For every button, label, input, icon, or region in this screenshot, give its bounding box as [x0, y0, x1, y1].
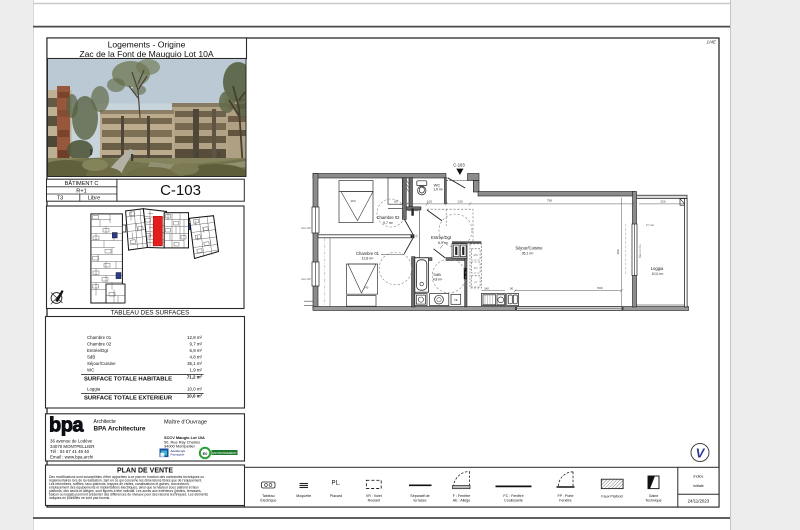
- svg-text:4,8 m²: 4,8 m²: [190, 355, 203, 360]
- svg-text:12,8 m²: 12,8 m²: [187, 335, 202, 340]
- svg-text:Gaine: Gaine: [649, 494, 659, 498]
- svg-text:Électrique: Électrique: [260, 497, 276, 502]
- svg-text:Faux Plafond: Faux Plafond: [601, 495, 622, 499]
- svg-text:TABLEAU DES SURFACES: TABLEAU DES SURFACES: [111, 309, 190, 316]
- svg-text:bpa: bpa: [49, 415, 84, 437]
- svg-text:Libre: Libre: [88, 196, 100, 202]
- svg-text:SURFACE TOTALE EXTERIEUR: SURFACE TOTALE EXTERIEUR: [84, 396, 173, 402]
- svg-text:V: V: [696, 446, 706, 461]
- svg-text:Moquette: Moquette: [296, 494, 311, 498]
- svg-text:Maître d'Ouvrage: Maître d'Ouvrage: [164, 419, 207, 425]
- svg-text:SdB: SdB: [433, 272, 441, 277]
- svg-text:AE : Allège: AE : Allège: [453, 498, 471, 502]
- svg-text:SdB: SdB: [87, 355, 95, 360]
- svg-text:790: 790: [547, 198, 552, 202]
- svg-text:Séjour/Cuisine: Séjour/Cuisine: [87, 361, 116, 366]
- svg-text:F : Fenêtre: F : Fenêtre: [453, 494, 471, 498]
- svg-text:9,7 m²: 9,7 m²: [383, 221, 394, 225]
- svg-text:130: 130: [457, 200, 462, 204]
- svg-text:Technique: Technique: [645, 498, 661, 502]
- svg-text:FO: FO: [474, 266, 478, 270]
- svg-text:Indice: Indice: [693, 475, 703, 479]
- svg-text:VR : Volet: VR : Volet: [366, 494, 382, 498]
- svg-text:BÂTIMENT C: BÂTIMENT C: [65, 180, 99, 187]
- svg-text:initiale: initiale: [693, 484, 704, 488]
- svg-text:Email : www.bpa.archi: Email : www.bpa.archi: [50, 454, 93, 459]
- svg-text:140: 140: [484, 287, 489, 291]
- svg-text:220: 220: [660, 199, 665, 203]
- svg-text:Tableau: Tableau: [262, 494, 275, 498]
- svg-text:SURFACE TOTALE HABITABLE: SURFACE TOTALE HABITABLE: [84, 377, 172, 383]
- svg-text:35,1 m²: 35,1 m²: [522, 252, 535, 256]
- svg-text:terrasse: terrasse: [414, 498, 427, 502]
- svg-text:140: 140: [364, 286, 369, 290]
- svg-text:Loggia: Loggia: [87, 387, 101, 392]
- svg-text:Chambre 01: Chambre 01: [356, 251, 380, 256]
- svg-text:500: 500: [597, 286, 602, 290]
- svg-text:1/4E: 1/4E: [707, 40, 717, 45]
- svg-text:Fenêtre: Fenêtre: [559, 498, 571, 502]
- svg-text:FC : Fenêtre: FC : Fenêtre: [503, 494, 523, 498]
- svg-text:WC: WC: [87, 368, 94, 373]
- svg-text:VE: VE: [454, 298, 458, 302]
- svg-text:Paysagiste: Paysagiste: [171, 453, 185, 457]
- svg-text:90: 90: [510, 287, 514, 291]
- svg-text:Chambre 01: Chambre 01: [87, 335, 112, 340]
- svg-text:Chambre 02: Chambre 02: [87, 342, 112, 347]
- svg-text:102: 102: [427, 200, 432, 204]
- svg-text:Baie vit 4 m: Baie vit 4 m: [638, 244, 642, 258]
- svg-text:Tél : 04 67 41 49 40: Tél : 04 67 41 49 40: [50, 449, 90, 454]
- svg-text:ENVIRONNEMENT: ENVIRONNEMENT: [212, 451, 237, 455]
- svg-text:1,9 m²: 1,9 m²: [433, 188, 443, 192]
- svg-text:1,9 m²: 1,9 m²: [190, 368, 203, 373]
- svg-text:C-103: C-103: [453, 163, 465, 168]
- svg-text:12,8 m²: 12,8 m²: [362, 257, 375, 261]
- svg-text:R+1: R+1: [76, 188, 86, 194]
- svg-text:Séparatif de: Séparatif de: [410, 494, 429, 498]
- svg-text:LV: LV: [474, 280, 477, 284]
- svg-text:490: 490: [616, 249, 620, 254]
- svg-text:9,7 m²: 9,7 m²: [190, 342, 203, 347]
- svg-text:Entrée/Dgt: Entrée/Dgt: [431, 235, 452, 240]
- svg-text:6,9 m²: 6,9 m²: [438, 241, 449, 245]
- svg-text:35,1 m²: 35,1 m²: [187, 361, 202, 366]
- svg-text:10,0 m²: 10,0 m²: [652, 272, 665, 276]
- svg-text:BPA Architecture: BPA Architecture: [94, 426, 146, 433]
- svg-text:E0: E0: [203, 452, 208, 456]
- svg-text:Entrée/Dgt: Entrée/Dgt: [87, 348, 109, 353]
- svg-text:34000 Montpellier: 34000 Montpellier: [164, 444, 196, 449]
- svg-text:indiqués en pointillés ne sont: indiqués en pointillés ne sont pas fourn…: [49, 496, 110, 500]
- svg-text:T3: T3: [57, 196, 64, 202]
- svg-text:34070 MONTPELLIER: 34070 MONTPELLIER: [50, 444, 94, 449]
- svg-text:Chambre 02: Chambre 02: [376, 215, 400, 220]
- svg-text:4,8 m²: 4,8 m²: [433, 278, 443, 282]
- svg-text:71,2 m²: 71,2 m²: [187, 375, 203, 380]
- svg-text:Fen-VR: Fen-VR: [301, 226, 310, 230]
- svg-text:FC ratt: FC ratt: [646, 223, 654, 227]
- svg-text:Architecte: Architecte: [94, 419, 116, 425]
- svg-text:Loggia: Loggia: [651, 266, 664, 271]
- svg-text:PLAN DE VENTE: PLAN DE VENTE: [117, 468, 173, 475]
- svg-text:Fen-VR: Fen-VR: [301, 277, 310, 281]
- svg-text:36 avenue de Lodève: 36 avenue de Lodève: [50, 439, 93, 444]
- svg-text:MO: MO: [474, 253, 478, 257]
- svg-text:10,0 m²: 10,0 m²: [187, 387, 202, 392]
- svg-text:Zac de la Font de Mauguio Lot: Zac de la Font de Mauguio Lot 10A: [79, 49, 214, 59]
- svg-text:10,0 m²: 10,0 m²: [187, 394, 203, 399]
- svg-text:PL.: PL.: [331, 481, 340, 487]
- svg-text:FP : Porte: FP : Porte: [557, 494, 573, 498]
- svg-text:Roulant: Roulant: [368, 498, 380, 502]
- svg-text:Placard: Placard: [330, 494, 342, 498]
- svg-text:24/11/2023: 24/11/2023: [688, 499, 710, 504]
- svg-text:C-103: C-103: [160, 182, 201, 199]
- svg-text:Séjour/Cuisine: Séjour/Cuisine: [515, 246, 543, 251]
- svg-text:Coulissante: Coulissante: [504, 498, 523, 502]
- svg-text:6,9 m²: 6,9 m²: [190, 348, 203, 353]
- svg-text:160: 160: [350, 199, 355, 203]
